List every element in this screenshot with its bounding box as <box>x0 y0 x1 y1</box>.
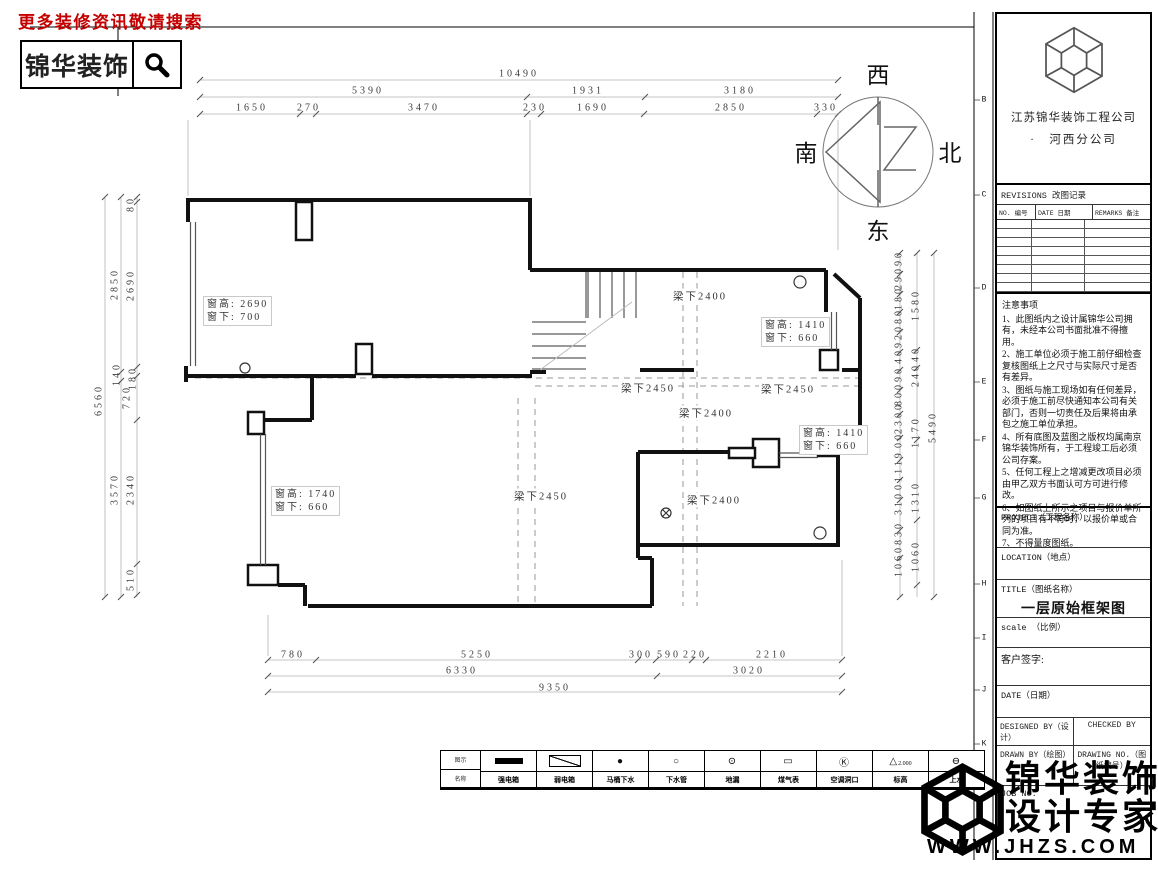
company-branch: · 河西分公司 <box>997 131 1150 147</box>
beam-label: 梁下2400 <box>685 493 743 508</box>
dimension-label: 920 <box>894 324 905 348</box>
legend-symbol-icon: ▭ <box>783 756 793 767</box>
dimension-label: 590 <box>657 650 681 661</box>
dimension-label: 6330 <box>446 666 478 677</box>
brand-logo-text: 锦华装饰 <box>22 47 132 83</box>
revision-row <box>997 229 1150 238</box>
window-label: 窗高: 1740 窗下: 660 <box>271 486 340 516</box>
dimension-label: 3180 <box>724 86 756 97</box>
dimension-label: 5390 <box>352 86 384 97</box>
legend-item: ⊙ 地漏 <box>705 751 761 787</box>
legend-symbol-icon <box>495 758 523 764</box>
company-cube-logo <box>1039 24 1109 96</box>
legend-symbol-icon: Ⓚ <box>839 754 850 769</box>
dimension-label: 01 <box>894 474 905 490</box>
dimension-label: 300 <box>629 650 653 661</box>
beam-label: 梁下2450 <box>619 381 677 396</box>
dimension-label: 1650 <box>236 103 268 114</box>
dimension-label: 2850 <box>715 103 747 114</box>
beam-label: 梁下2450 <box>759 382 817 397</box>
revision-row <box>997 247 1150 256</box>
dimension-label: 90 <box>894 250 905 266</box>
dimension-label: 1931 <box>572 86 604 97</box>
dimension-label: 1060 <box>894 545 905 577</box>
window-label: 窗高: 1410 窗下: 660 <box>799 425 868 455</box>
compass-north: 北 <box>939 134 962 168</box>
legend-item-name: 煤气表 <box>761 772 816 787</box>
revision-row <box>997 256 1150 265</box>
grid-letter: E <box>982 378 987 387</box>
dimension-label: 5250 <box>461 650 493 661</box>
brand-logo: 锦华装饰 <box>20 40 182 89</box>
legend-item: ○ 下水管 <box>649 751 705 787</box>
grid-letter: G <box>982 494 987 503</box>
field-title: TITLE（图纸名称） 一层原始框架图 <box>997 580 1150 618</box>
compass-south: 南 <box>795 134 818 168</box>
note-item: 5、任何工程上之增减更改项目必须由甲乙双方书面认可方可进行修改。 <box>1002 467 1145 502</box>
grid-letter: D <box>982 284 987 293</box>
watermark-text: 锦华装饰 设计专家 <box>1005 760 1158 836</box>
legend-item: ▭ 煤气表 <box>761 751 817 787</box>
dimension-label: 40 <box>911 346 922 362</box>
revision-row <box>997 274 1150 283</box>
dimension-label: 1170 <box>911 416 922 448</box>
dimension-label: 220 <box>683 650 707 661</box>
legend-item-name: 弱电箱 <box>537 772 592 787</box>
legend-item-name: 马桶下水 <box>593 772 648 787</box>
revision-row <box>997 220 1150 229</box>
dimension-label: 240 <box>911 363 922 387</box>
dimension-label: 3020 <box>733 666 765 677</box>
dimension-label: 1690 <box>577 103 609 114</box>
dimension-label: 830 <box>894 521 905 545</box>
drawing-sheet: 更多装修资讯敬请搜索 锦华装饰 西 北 东 南 1049053901931318… <box>0 0 1158 873</box>
legend-strip: 图示 名称 强电箱 弱电箱 ● 马桶下水 <box>440 750 985 790</box>
note-item: 4、所有底图及蓝图之版权均属南京锦华装饰所有，于工程竣工后必须公司存案。 <box>1002 432 1145 467</box>
dimension-label: 140 <box>112 362 123 386</box>
legend-item: Ⓚ 空调洞口 <box>817 751 873 787</box>
drawing-title: 一层原始框架图 <box>1001 598 1146 618</box>
field-date: DATE（日期） <box>997 686 1150 718</box>
dimension-label: 3470 <box>408 103 440 114</box>
grid-letter: H <box>982 580 987 589</box>
dimension-label: 270 <box>297 103 321 114</box>
dimension-label: 00 <box>894 432 905 448</box>
grid-letter: C <box>982 191 987 200</box>
revision-row <box>997 265 1150 274</box>
legend-item-name: 空调洞口 <box>817 772 872 787</box>
legend-symbol-icon: ● <box>617 756 624 767</box>
note-item: 3、图纸与施工现场如有任何差异，必须于施工前尽快通知本公司有关部门，否则一切责任… <box>1002 385 1145 431</box>
legend-symbol-icon: ⊙ <box>728 756 737 767</box>
grid-letter: K <box>982 740 987 749</box>
dimension-label: 40 <box>894 348 905 364</box>
legend-item-name: 下水管 <box>649 772 704 787</box>
field-scale: scale （比例） <box>997 618 1150 648</box>
legend-symbol-icon <box>549 755 581 767</box>
legend-item: ● 马桶下水 <box>593 751 649 787</box>
revision-row <box>997 283 1150 292</box>
site-slogan: 更多装修资讯敬请搜索 <box>18 8 203 33</box>
compass-east: 东 <box>867 212 890 246</box>
revisions-title: REVISIONS 改图记录 <box>997 185 1150 205</box>
dimension-label: 2850 <box>110 268 121 300</box>
compass-west: 西 <box>867 56 890 90</box>
revisions-header: NO. 编号 DATE 日期 REMARKS 备注 <box>997 205 1150 220</box>
legend-item-name: 强电箱 <box>481 772 536 787</box>
legend-item-name: 地漏 <box>705 772 760 787</box>
dimension-label: 180 <box>894 286 905 310</box>
dimension-label: 6560 <box>94 384 105 416</box>
revisions-table: REVISIONS 改图记录 NO. 编号 DATE 日期 REMARKS 备注 <box>997 185 1150 294</box>
beam-label: 梁下2450 <box>512 489 570 504</box>
field-location: LOCATION（地点） <box>997 548 1150 580</box>
dimension-label: 2340 <box>126 473 137 505</box>
dimension-label: 1580 <box>911 289 922 321</box>
search-icon <box>134 51 180 79</box>
beam-label: 梁下2400 <box>671 289 729 304</box>
dimension-label: 2690 <box>126 269 137 301</box>
beam-label: 梁下2400 <box>677 406 735 421</box>
legend-symbol-icon: ○ <box>673 756 680 767</box>
notes-section: 注意事项 1、此图纸内之设计属锦华公司拥有，未经本公司书面批准不得擅用。2、施工… <box>997 294 1150 508</box>
grid-letter: F <box>982 436 987 445</box>
title-block: 江苏锦华装饰工程公司 · 河西分公司 REVISIONS 改图记录 NO. 编号… <box>995 12 1152 860</box>
legend-symbol-icon: △2.000 <box>889 756 911 767</box>
field-client-sign: 客户签字: <box>997 648 1150 686</box>
dimension-label: 780 <box>281 650 305 661</box>
field-designed-checked: DESIGNED BY（设计） CHECKED BY <box>997 718 1150 746</box>
brand-watermark: 锦华装饰 设计专家 WWW.JHZS.COM <box>915 752 1158 873</box>
dimension-label: 80 <box>126 196 137 212</box>
dimension-label: 720 <box>122 385 133 409</box>
grid-letter: J <box>982 686 987 695</box>
company-name: 江苏锦华装饰工程公司 <box>997 109 1150 125</box>
dimension-label: 5490 <box>928 411 939 443</box>
grid-letter: B <box>982 96 987 105</box>
dimension-label: 2210 <box>756 650 788 661</box>
dimension-label: 3570 <box>110 473 121 505</box>
dimension-label: 9350 <box>539 683 571 694</box>
dimension-label: 90 <box>894 366 905 382</box>
dimension-label: 2300 <box>894 402 905 434</box>
dimension-label: 80 <box>894 308 905 324</box>
dimension-label: 510 <box>126 567 137 591</box>
company-header: 江苏锦华装饰工程公司 · 河西分公司 <box>997 14 1150 185</box>
dimension-label: 1060 <box>911 540 922 572</box>
compass-icon <box>823 97 933 207</box>
dimension-label: 230 <box>523 103 547 114</box>
dimension-label: 1310 <box>911 481 922 513</box>
dimension-label: 310 <box>894 491 905 515</box>
legend-item: 强电箱 <box>481 751 537 787</box>
legend-item: 弱电箱 <box>537 751 593 787</box>
dimension-label: 10490 <box>499 69 539 80</box>
watermark-url: WWW.JHZS.COM <box>927 836 1139 859</box>
dimension-label: 119 <box>894 450 905 474</box>
note-item: 2、施工单位必须于施工前仔细检查复核图纸上之尺寸与实际尺寸是否有差异。 <box>1002 349 1145 384</box>
window-label: 窗高: 2690 窗下: 700 <box>203 296 272 326</box>
notes-title: 注意事项 <box>1002 300 1145 312</box>
window-label: 窗高: 1410 窗下: 660 <box>761 317 830 347</box>
revision-row <box>997 238 1150 247</box>
grid-letter: I <box>982 634 987 643</box>
note-item: 1、此图纸内之设计属锦华公司拥有，未经本公司书面批准不得擅用。 <box>1002 314 1145 349</box>
dimension-label: 330 <box>814 103 838 114</box>
legend-row-labels: 图示 名称 <box>441 751 481 787</box>
